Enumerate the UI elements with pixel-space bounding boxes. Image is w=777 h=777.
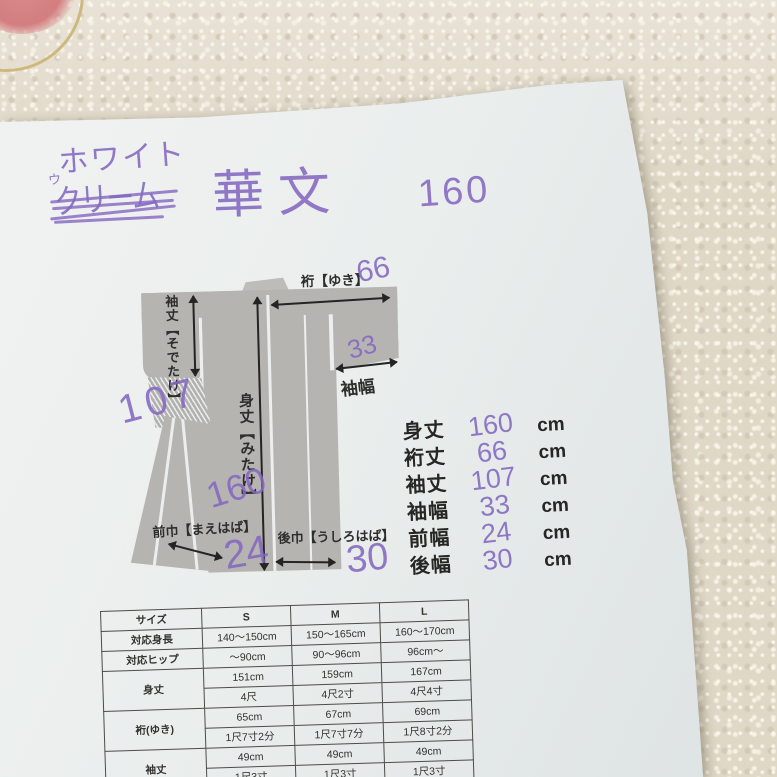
cell: 1尺7寸2分: [205, 725, 295, 748]
cell: 4尺4寸: [382, 680, 472, 703]
cell: 167cm: [381, 660, 471, 683]
row-label: 身丈: [102, 668, 204, 711]
measurement-label: 後幅: [409, 548, 458, 579]
sleeve-width-label: 袖幅: [339, 372, 376, 401]
cell: 1尺3寸: [206, 765, 296, 777]
row-label: 裄(ゆき): [104, 708, 206, 751]
row-label: 袖丈: [105, 748, 207, 777]
measurement-unit: cm: [530, 414, 565, 438]
handwritten-height: 160: [417, 169, 492, 217]
cell: 69cm: [383, 700, 473, 723]
measurement-unit: cm: [536, 522, 571, 546]
cell: 65cm: [205, 705, 295, 728]
kimono-measurement-diagram: 裄【ゆき】 袖丈【そでたけ】 身丈【みたけ】 袖幅 前巾【まえはば】 後巾【うし…: [119, 266, 420, 614]
cell: 1尺3寸: [384, 760, 474, 777]
measurement-unit: cm: [533, 468, 568, 492]
measurement-unit: cm: [534, 495, 569, 519]
cell: 151cm: [203, 665, 293, 688]
photo-of-kimono-measurement-sheet: ホワイト ウ クリーム 華文 160: [0, 0, 777, 777]
cell: 4尺: [204, 685, 294, 708]
cell: 1尺8寸2分: [383, 720, 473, 743]
handwritten-back-width-value: 30: [344, 536, 390, 583]
cell: 150～165cm: [291, 623, 381, 646]
size-l-header: L: [379, 600, 469, 623]
handwritten-notes: ホワイト ウ クリーム 華文 160: [40, 125, 540, 255]
measurement-unit: cm: [537, 549, 572, 573]
size-table: サイズ S M L 対応身長 140～150cm 150～165cm 160～1…: [100, 599, 475, 777]
cell: 67cm: [294, 703, 384, 726]
size-m-header: M: [290, 603, 380, 626]
cell: ～90cm: [203, 645, 293, 668]
cell: 160～170cm: [380, 620, 470, 643]
handwritten-pattern-name: 華文: [211, 149, 346, 229]
cell: 96cm～: [381, 640, 471, 663]
front-panel-flare: [124, 411, 218, 575]
measurement-row: 身丈 160 cm: [402, 406, 565, 441]
cell: 1尺3寸: [295, 763, 385, 777]
size-s-header: S: [201, 606, 291, 629]
measurement-list: 身丈 160 cm 裄丈 66 cm 袖丈 107 cm 袖幅 33 cm 前幅: [402, 406, 572, 576]
cell: 1尺7寸7分: [294, 723, 384, 746]
cell: 49cm: [295, 743, 385, 766]
paper-sheet: ホワイト ウ クリーム 華文 160: [0, 0, 777, 777]
paper-sheet-wrap: ホワイト ウ クリーム 華文 160: [0, 0, 777, 777]
handwritten-yuki-value: 66: [354, 250, 393, 290]
cell: 159cm: [292, 663, 382, 686]
cell: 90～96cm: [292, 643, 382, 666]
cell: 49cm: [384, 740, 474, 763]
measurement-unit: cm: [532, 441, 567, 465]
cell: 140～150cm: [202, 626, 292, 649]
handwritten-front-width-value: 24: [221, 527, 272, 579]
cell: 4尺2寸: [293, 683, 383, 706]
cell: 49cm: [206, 745, 296, 768]
